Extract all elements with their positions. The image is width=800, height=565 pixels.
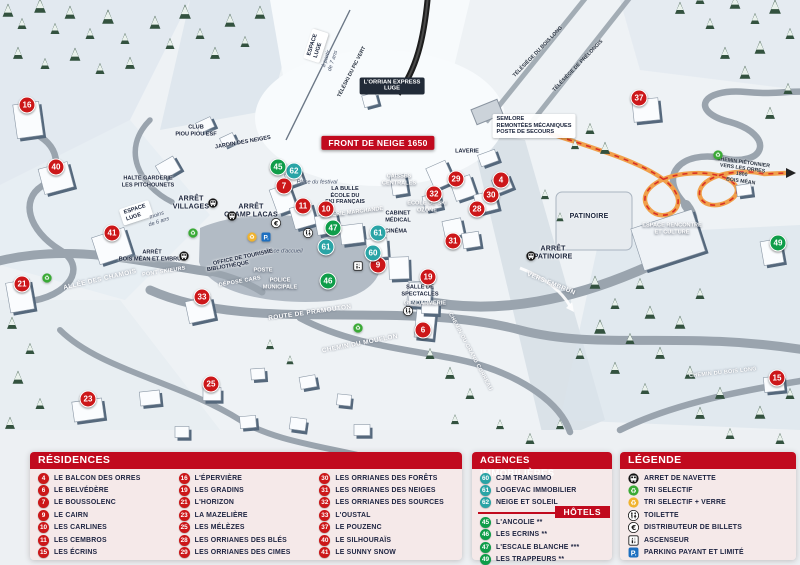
legend-item-label: LE BELVÉDÈRE: [54, 487, 109, 494]
legend-item: 60CJM TRANSIMO: [478, 472, 608, 484]
legend-item: 31LES ORRIANES DES NEIGES: [317, 484, 458, 496]
map-label: SEMLORE REMONTÉES MÉCANIQUES POSTE DE SE…: [493, 114, 576, 138]
agency-number-badge: 60: [480, 473, 491, 484]
legend-item: 37LE POUZENC: [317, 522, 458, 534]
legend-item-label: TRI SELECTIF + VERRE: [644, 499, 726, 506]
legend-item-label: L'HORIZON: [195, 499, 234, 506]
legend-item: 6LE BELVÉDÈRE: [36, 484, 177, 496]
map-label: Place du festival: [297, 180, 338, 187]
map-label: ARRÊT PATINOIRE: [534, 246, 573, 263]
map-bus-icon: [208, 198, 218, 208]
map-label: L'ORRIAN EXPRESS LUGE: [360, 78, 425, 95]
legend-item-label: LE SUNNY SNOW: [335, 549, 396, 556]
legend-item: 7LE BOUSSOLENC: [36, 497, 177, 509]
legend-item: €DISTRIBUTEUR DE BILLETS: [626, 522, 792, 534]
map-toilet-icon: [403, 306, 413, 316]
map-marker-hotel-49: 49: [770, 235, 787, 252]
parking-icon: P.: [628, 547, 639, 558]
map-marker-residence-10: 10: [318, 201, 335, 218]
recycle-yellow-icon: ♻: [628, 497, 639, 508]
map-label: POSTE: [254, 268, 273, 275]
residence-number-badge: 6: [38, 485, 49, 496]
legend-item: 16L'ÉPERVIÈRE: [177, 472, 318, 484]
legend-item: 23LA MAZELIÈRE: [177, 509, 318, 521]
map-label: ÉCOLE DE SKI OZONE: [407, 200, 446, 213]
map-label: ESPACE RENCONTRE ET CULTURE: [642, 222, 702, 235]
legend-item: 29LES ORRIANES DES CIMES: [177, 546, 318, 558]
map-label: TÉLÉSIÈGE DE PRÉLONGIS: [552, 39, 605, 94]
legend-item-label: LES ECRINS **: [496, 531, 547, 538]
legend-item-label: LE POUZENC: [335, 524, 381, 531]
residence-number-badge: 31: [319, 485, 330, 496]
map-label: ARRÊT VILLAGES: [173, 196, 210, 213]
residence-number-badge: 40: [319, 535, 330, 546]
legend-item-label: LES MÉLÈZES: [195, 524, 245, 531]
map-marker-agency-61: 61: [370, 225, 387, 242]
map-marker-residence-21: 21: [14, 276, 31, 293]
svg-text:€: €: [273, 220, 278, 227]
residence-number-badge: 21: [179, 497, 190, 508]
agencies-list: 60CJM TRANSIMO61LOGEVAC IMMOBILIER62NEIG…: [478, 472, 608, 509]
legend-item-label: ASCENSEUR: [644, 537, 689, 544]
resort-map-page: 1640412133232571110961931283032294371562…: [0, 0, 800, 565]
map-label: POLICE MUNICIPALE: [263, 277, 297, 290]
hotels-list: 45L'ANCOLIE **46LES ECRINS **47L'ESCALE …: [478, 516, 608, 565]
map-marker-residence-6: 6: [415, 322, 432, 339]
toilet-icon: [628, 510, 639, 521]
legend-panel: LÉGENDE ARRET DE NAVETTE♻TRI SELECTIF♻TR…: [620, 452, 796, 560]
map-label: ALLÉE DES CHAMOIS: [63, 268, 137, 292]
legend-item-label: LES ORRIANES DES BLÉS: [195, 537, 287, 544]
residence-number-badge: 33: [319, 510, 330, 521]
legend-item: 9LE CAIRN: [36, 509, 177, 521]
residence-number-badge: 32: [319, 497, 330, 508]
legend-item-label: ARRET DE NAVETTE: [644, 475, 716, 482]
legend-item-label: PARKING PAYANT ET LIMITÉ: [644, 549, 744, 556]
map-bus-icon: [526, 251, 536, 261]
map-marker-residence-41: 41: [104, 225, 121, 242]
legend-item-label: LES ORRIANES DES NEIGES: [335, 487, 435, 494]
legend-item-label: TOILETTE: [644, 512, 679, 519]
svg-text:♻: ♻: [249, 234, 255, 241]
map-marker-residence-23: 23: [80, 391, 97, 408]
map-label: DÉPOSE CARS: [218, 275, 261, 289]
map-euro-icon: €: [271, 218, 281, 228]
legend-item: ♻TRI SELECTIF: [626, 484, 792, 496]
map-elevator-icon: [353, 261, 363, 271]
residence-number-badge: 28: [179, 535, 190, 546]
svg-text:♻: ♻: [190, 230, 196, 237]
map-toilet-icon: [303, 228, 313, 238]
map-label: ROUTE DE PRAMOUTON: [268, 303, 352, 322]
map-label: CINÉMA: [385, 229, 407, 236]
legend-item-label: NEIGE ET SOLEIL: [496, 499, 558, 506]
legend-item-label: LES ORRIANES DES CIMES: [195, 549, 291, 556]
legend-item: 25LES MÉLÈZES: [177, 522, 318, 534]
map-bus-icon: [227, 211, 237, 221]
map-marker-residence-4: 4: [493, 172, 510, 189]
legend-list: ARRET DE NAVETTE♻TRI SELECTIF♻TRI SELECT…: [620, 469, 796, 562]
svg-text:♻: ♻: [44, 275, 50, 282]
map-recycle-yellow-icon: ♻: [247, 232, 257, 242]
residence-number-badge: 9: [38, 510, 49, 521]
map-label: PONT SKIEURS: [142, 265, 187, 278]
residence-number-badge: 15: [38, 547, 49, 558]
map-marker-residence-30: 30: [483, 187, 500, 204]
residence-number-badge: 10: [38, 522, 49, 533]
legend-item-label: LES TRAPPEURS **: [496, 556, 564, 563]
map-marker-hotel-45: 45: [270, 159, 287, 176]
legend-item: 15LES ÉCRINS: [36, 546, 177, 558]
map-marker-residence-31: 31: [445, 233, 462, 250]
residence-number-badge: 23: [179, 510, 190, 521]
legend-item: 61LOGEVAC IMMOBILIER: [478, 484, 608, 496]
map-marker-agency-60: 60: [365, 245, 382, 262]
map-marker-residence-19: 19: [420, 269, 437, 286]
svg-text:♻: ♻: [715, 152, 721, 159]
map-label: CAISSES CENTRALES: [382, 173, 416, 186]
svg-text:♻: ♻: [630, 499, 636, 507]
legend-item-label: LES ÉCRINS: [54, 549, 97, 556]
svg-text:P.: P.: [631, 549, 637, 557]
map-label: CHEMIN PIÉTONNIER VERS LES ORRES 1800 BO…: [712, 156, 773, 189]
agency-number-badge: 62: [480, 497, 491, 508]
residences-panel: RÉSIDENCES 4LE BALCON DES ORRES6LE BELVÉ…: [30, 452, 462, 560]
map-marker-hotel-46: 46: [320, 273, 337, 290]
legend-item: ARRET DE NAVETTE: [626, 472, 792, 484]
hotel-number-badge: 46: [480, 529, 491, 540]
map-label: ARRÊT BOIS MÉAN ET EMBRUN: [119, 249, 186, 262]
recycle-green-icon: ♻: [628, 485, 639, 496]
legend-item-label: LE BALCON DES ORRES: [54, 475, 141, 482]
legend-item-label: LE SILHOURAÏS: [335, 537, 391, 544]
legend-item: ♻TRI SELECTIF + VERRE: [626, 497, 792, 509]
map-recycle-green-icon: ♻: [42, 273, 52, 283]
residences-column: 4LE BALCON DES ORRES6LE BELVÉDÈRE7LE BOU…: [36, 472, 177, 559]
map-marker-residence-33: 33: [194, 289, 211, 306]
legend-item: 10LES CARLINES: [36, 522, 177, 534]
map-marker-hotel-47: 47: [325, 220, 342, 237]
residence-number-badge: 7: [38, 497, 49, 508]
legend-item-label: LE BOUSSOLENC: [54, 499, 116, 506]
svg-text:♻: ♻: [355, 325, 361, 332]
legend-item-label: L'OUSTAL: [335, 512, 370, 519]
legend-item: 30LES ORRIANES DES FORÊTS: [317, 472, 458, 484]
legend-item-label: LES GRADINS: [195, 487, 244, 494]
map-marker-residence-7: 7: [276, 178, 293, 195]
map-marker-residence-25: 25: [203, 376, 220, 393]
svg-text:♻: ♻: [630, 487, 636, 495]
map-label: TÉLÉSIÈGE DU BOIS LONG: [512, 25, 564, 79]
map-recycle-green-icon: ♻: [353, 323, 363, 333]
map-marker-residence-16: 16: [19, 97, 36, 114]
legend-item-label: L'ESCALE BLANCHE ***: [496, 544, 579, 551]
legend-item: 40LE SILHOURAÏS: [317, 534, 458, 546]
map-marker-residence-32: 32: [426, 186, 443, 203]
map-label: CHEMIN DU BOIS LONG: [689, 366, 757, 380]
map-recycle-green-icon: ♻: [188, 228, 198, 238]
agency-number-badge: 61: [480, 485, 491, 496]
map-marker-residence-28: 28: [469, 201, 486, 218]
legend-item-label: LES CEMBROS: [54, 537, 107, 544]
legend-item-label: DISTRIBUTEUR DE BILLETS: [644, 524, 742, 531]
map-label: SALLE DE SPECTACLES: [401, 284, 438, 297]
map-marker-residence-15: 15: [769, 370, 786, 387]
legend-item-label: CJM TRANSIMO: [496, 475, 552, 482]
svg-text:P.: P.: [263, 235, 268, 242]
map-label: HALTE GARDERIE LES PITCHOUNETS: [122, 175, 175, 188]
legend-item-label: L'ANCOLIE **: [496, 519, 543, 526]
hotels-divider: HÔTELS: [478, 512, 608, 514]
svg-text:€: €: [630, 524, 636, 532]
map-label: CHEMIN DU MOUFLON: [321, 333, 398, 355]
legend-item-label: LES ORRIANES DES SOURCES: [335, 499, 444, 506]
legend-item-label: L'ÉPERVIÈRE: [195, 475, 242, 482]
map-recycle-green-icon: ♻: [713, 150, 723, 160]
legend-item-label: LES CARLINES: [54, 524, 107, 531]
legend-item-label: TRI SELECTIF: [644, 487, 693, 494]
legend-item: 46LES ECRINS **: [478, 529, 608, 541]
residence-number-badge: 41: [319, 547, 330, 558]
legend-item: P.PARKING PAYANT ET LIMITÉ: [626, 546, 792, 558]
residences-column: 30LES ORRIANES DES FORÊTS31LES ORRIANES …: [317, 472, 458, 559]
map-label: à partir de 7 ans: [320, 48, 339, 73]
residence-number-badge: 16: [179, 473, 190, 484]
legend-item-label: LOGEVAC IMMOBILIER: [496, 487, 576, 494]
map-marker-residence-40: 40: [48, 159, 65, 176]
legend-item-label: LE CAIRN: [54, 512, 88, 519]
legend-item-label: LES ORRIANES DES FORÊTS: [335, 475, 437, 482]
residence-number-badge: 25: [179, 522, 190, 533]
legend-item: 32LES ORRIANES DES SOURCES: [317, 497, 458, 509]
legend-item: 47L'ESCALE BLANCHE ***: [478, 541, 608, 553]
legend-item: 21L'HORIZON: [177, 497, 318, 509]
map-marker-residence-37: 37: [631, 90, 648, 107]
legend-item: TOILETTE: [626, 509, 792, 521]
map-label: PATINOIRE: [570, 213, 609, 221]
map-marker-agency-61: 61: [318, 239, 335, 256]
map-label: CHEMIN DU GRAND CORREAU: [447, 312, 494, 392]
map-label: JARDIN DES NEIGES: [215, 135, 272, 151]
agencies-panel-title: AGENCES IMMOBILIÈRES: [472, 452, 612, 469]
legend-item: 49LES TRAPPEURS **: [478, 553, 608, 565]
residence-number-badge: 30: [319, 473, 330, 484]
map-label: LAVERIE: [455, 149, 479, 156]
map-marker-agency-62: 62: [286, 163, 303, 180]
residences-list: 4LE BALCON DES ORRES6LE BELVÉDÈRE7LE BOU…: [30, 469, 462, 562]
map-label: CLUB PIOU PIOU ESF: [175, 124, 216, 137]
map-parking-icon: P.: [261, 232, 271, 242]
hotel-number-badge: 47: [480, 542, 491, 553]
legend-item: ASCENSEUR: [626, 534, 792, 546]
map-label: VERS EMBRUN: [526, 271, 577, 297]
residence-number-badge: 19: [179, 485, 190, 496]
legend-item: 28LES ORRIANES DES BLÉS: [177, 534, 318, 546]
legend-item-label: LA MAZELIÈRE: [195, 512, 248, 519]
residences-panel-title: RÉSIDENCES: [30, 452, 462, 469]
euro-icon: €: [628, 522, 639, 533]
residences-column: 16L'ÉPERVIÈRE19LES GRADINS21L'HORIZON23L…: [177, 472, 318, 559]
map-marker-residence-29: 29: [448, 171, 465, 188]
legend-item: 19LES GRADINS: [177, 484, 318, 496]
map-label: CABINET MÉDICAL: [385, 210, 410, 223]
map-bus-icon: [179, 251, 189, 261]
legend-item: 41LE SUNNY SNOW: [317, 546, 458, 558]
bus-icon: [628, 473, 639, 484]
hotels-title: HÔTELS: [555, 506, 610, 518]
map-marker-residence-11: 11: [295, 198, 312, 215]
agencies-hotels-panel: AGENCES IMMOBILIÈRES 60CJM TRANSIMO61LOG…: [472, 452, 612, 560]
residence-number-badge: 11: [38, 535, 49, 546]
residence-number-badge: 4: [38, 473, 49, 484]
legend-panel-title: LÉGENDE: [620, 452, 796, 469]
residence-number-badge: 29: [179, 547, 190, 558]
elevator-icon: [628, 535, 639, 546]
hotel-number-badge: 45: [480, 517, 491, 528]
map-label: FRONT DE NEIGE 1650: [321, 136, 434, 150]
hotel-number-badge: 49: [480, 554, 491, 565]
legend-item: 33L'OUSTAL: [317, 509, 458, 521]
residence-number-badge: 37: [319, 522, 330, 533]
legend-item: 11LES CEMBROS: [36, 534, 177, 546]
legend-item: 4LE BALCON DES ORRES: [36, 472, 177, 484]
